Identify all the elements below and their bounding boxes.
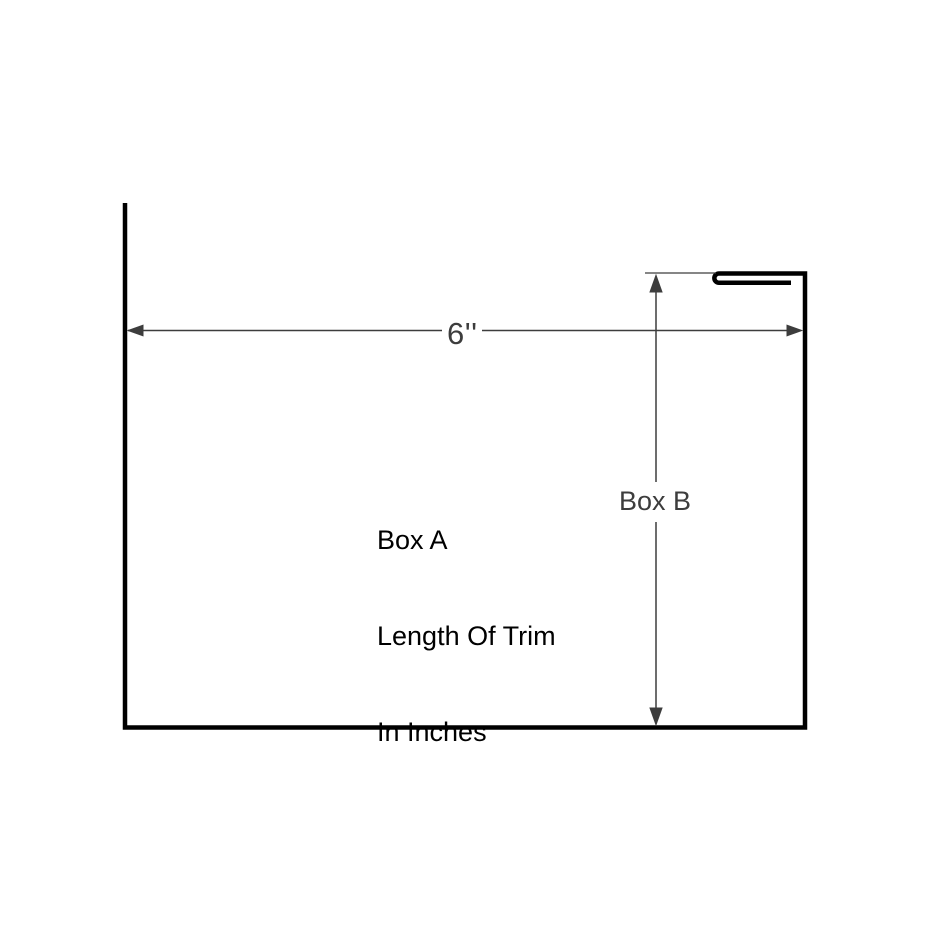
box-a-line2: Length Of Trim (377, 620, 556, 652)
height-arrow-down-icon (649, 708, 662, 727)
trim-dimension-diagram: 6'' Box A Length Of Trim In Inches Box B (0, 0, 930, 930)
width-arrow-left-icon (127, 325, 144, 337)
width-arrow-right-icon (787, 325, 804, 337)
width-dimension-label: 6'' (447, 318, 478, 349)
box-a-label: Box A Length Of Trim In Inches (377, 460, 556, 812)
height-arrow-up-icon (649, 274, 662, 293)
box-b-label: Box B (619, 488, 691, 515)
box-a-line3: In Inches (377, 716, 556, 748)
box-a-line1: Box A (377, 524, 556, 556)
